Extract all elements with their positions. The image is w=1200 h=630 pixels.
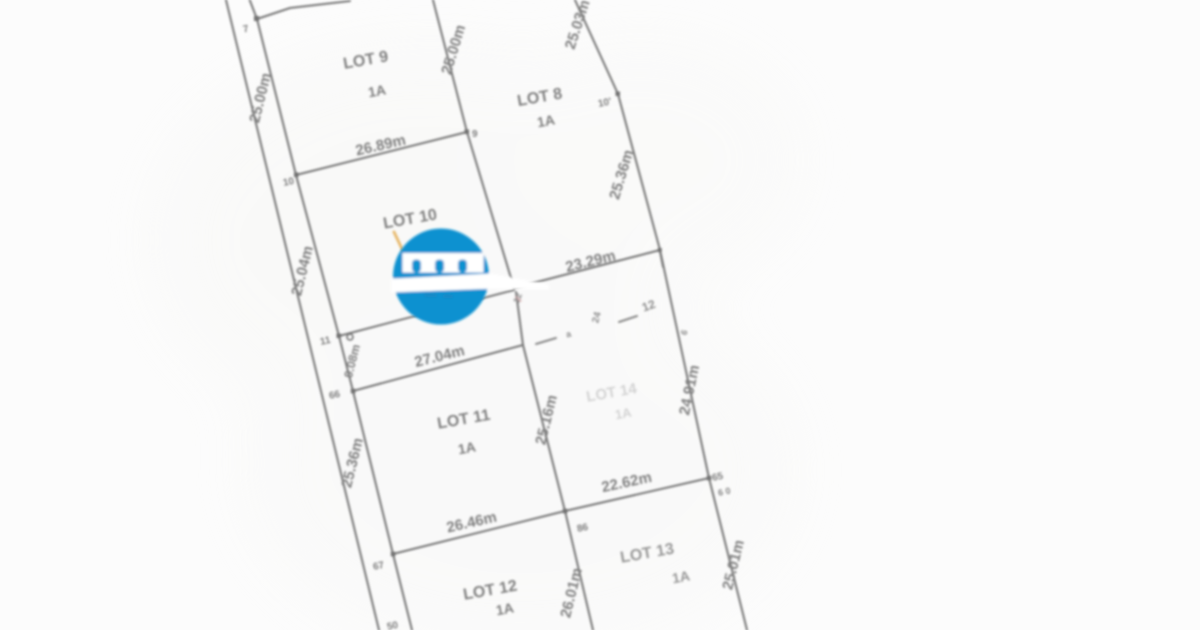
- svg-text:1A: 1A: [457, 438, 477, 457]
- svg-text:1A: 1A: [614, 405, 634, 423]
- svg-text:1A: 1A: [671, 567, 691, 586]
- svg-text:1A: 1A: [367, 81, 387, 100]
- svg-text:1A: 1A: [495, 599, 515, 618]
- svg-text:1A: 1A: [536, 111, 556, 130]
- svg-text:9: 9: [472, 129, 478, 140]
